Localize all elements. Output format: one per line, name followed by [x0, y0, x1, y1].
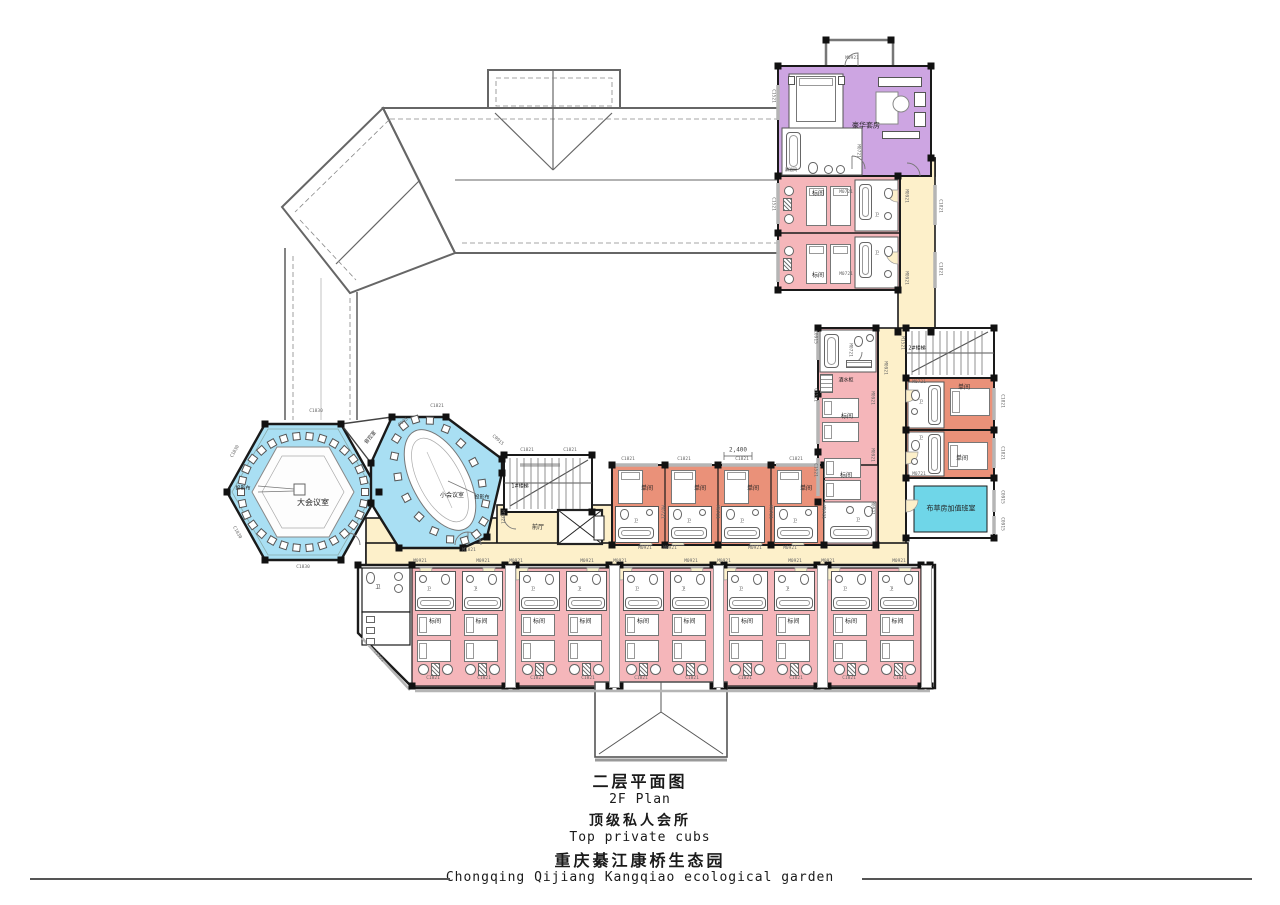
balcony-chair [834, 664, 845, 675]
sink [911, 408, 918, 415]
room-label: 卫 [740, 519, 744, 523]
door-window-code: M0721 [912, 381, 926, 386]
sink [466, 575, 474, 583]
toilet [726, 509, 735, 520]
counter [846, 360, 872, 368]
balcony-table [783, 258, 792, 271]
sink [570, 575, 578, 583]
room-label: 1#楼梯 [511, 485, 528, 490]
pair-wall [921, 565, 932, 688]
bed [464, 640, 498, 662]
wine-cabinet [820, 374, 833, 393]
bed [822, 422, 859, 442]
balcony-table [478, 663, 487, 676]
door-window-code: M0921 [788, 560, 802, 565]
room-label: 卫 [578, 587, 582, 591]
bathtub [776, 597, 813, 609]
balcony-chair [784, 186, 794, 196]
door-window-code: M0921 [783, 547, 797, 552]
door-window-code: C1821 [520, 449, 534, 454]
bed [568, 640, 602, 662]
room-label: 卫 [634, 519, 638, 523]
balcony-chair [442, 664, 453, 675]
room-label: 卫 [474, 587, 478, 591]
balcony-table [894, 663, 903, 676]
toilet [779, 509, 788, 520]
door-window-code: C1821 [677, 458, 691, 463]
room-label: 标间 [845, 619, 857, 625]
door-window-code: M0921 [869, 391, 874, 405]
sink [731, 575, 739, 583]
door-window-code: C1821 [842, 677, 856, 682]
sink [394, 572, 403, 581]
bed [824, 480, 861, 500]
urinal [366, 638, 375, 645]
entrance-porch-roof [595, 682, 727, 760]
bed [618, 470, 643, 504]
door-window-code: M1821 [462, 549, 476, 554]
door-window-code: M0921 [638, 547, 652, 552]
room-label: 小会议室 [440, 493, 464, 499]
room-label: 酒水柜 [838, 379, 853, 384]
sink [523, 575, 531, 583]
door-window-code: C1521 [770, 89, 775, 103]
balcony-table [431, 663, 440, 676]
door-window-code: M0721 [839, 191, 853, 196]
urinal [366, 627, 375, 634]
toilet [592, 574, 601, 585]
bed [777, 470, 802, 504]
balcony-table [535, 663, 544, 676]
balcony-chair [626, 664, 637, 675]
balcony-chair [569, 664, 580, 675]
room-label: 卫 [739, 587, 743, 591]
room-label: 标间 [533, 619, 545, 625]
door-window-code: C1830 [296, 566, 310, 571]
room-label: 卫 [427, 587, 431, 591]
balcony-chair [697, 664, 708, 675]
door-window-code: C1821 [789, 677, 803, 682]
door-window-code: C1821 [530, 677, 544, 682]
balcony-chair [522, 664, 533, 675]
suite-sink [824, 165, 833, 174]
toilet [545, 574, 554, 585]
room-label: 卫 [856, 518, 860, 522]
sink [835, 575, 843, 583]
bed [776, 640, 810, 662]
balcony-chair [801, 664, 812, 675]
bed [729, 640, 763, 662]
door-window-code: C1821 [893, 677, 907, 682]
room-label: 标间 [812, 191, 824, 197]
door-window-code: C1821 [477, 677, 491, 682]
balcony-chair [489, 664, 500, 675]
balcony-table [847, 663, 856, 676]
bathtub [830, 526, 872, 539]
door-window-code: M0921 [903, 189, 908, 203]
suite-armchair [914, 112, 926, 127]
sink [752, 509, 759, 516]
toilet [884, 246, 893, 257]
project-name-zh: 重庆綦江康桥生态园 [0, 847, 1280, 871]
room-label: 卫 [375, 586, 380, 591]
sink [627, 575, 635, 583]
balcony-table [783, 198, 792, 211]
sink [674, 575, 682, 583]
bed [880, 640, 914, 662]
balcony-chair [465, 664, 476, 675]
dimension-label: 2,400 [729, 447, 747, 454]
bathtub [618, 527, 654, 539]
bathtub [859, 184, 872, 220]
sink [911, 458, 918, 465]
door-window-code: M0921 [748, 547, 762, 552]
bathtub [671, 527, 707, 539]
door-window-code: C1821 [634, 677, 648, 682]
room-label: 卫 [531, 587, 535, 591]
door-window-code: C1830 [309, 410, 323, 415]
nightstand [788, 76, 795, 85]
balcony-chair [858, 664, 869, 675]
toilet [441, 574, 450, 585]
roof-plan [282, 70, 785, 420]
toilet [911, 440, 920, 451]
toilet [620, 509, 629, 520]
door-window-code: M0721 [659, 505, 664, 519]
room-label: 卫 [786, 587, 790, 591]
room-label: 标间 [429, 619, 441, 625]
balcony-chair [673, 664, 684, 675]
bathtub [672, 597, 709, 609]
door-window-code: M0921 [717, 560, 731, 565]
sink [778, 575, 786, 583]
room-label: 单间 [800, 486, 812, 492]
room-label: 标间 [787, 619, 799, 625]
sink [394, 584, 403, 593]
bathtub [464, 597, 501, 609]
bathtub [521, 597, 558, 609]
sink [884, 212, 892, 220]
bathtub [724, 527, 760, 539]
door-window-code: M0921 [413, 560, 427, 565]
toilet [649, 574, 658, 585]
door-window-code: M0921 [580, 560, 594, 565]
door-window-code: M0921 [892, 560, 906, 565]
bed [672, 640, 706, 662]
door-window-code: M0721 [847, 343, 852, 357]
room-label: 卫 [843, 587, 847, 591]
sink [699, 509, 706, 516]
door-window-code: C1821 [937, 262, 942, 276]
title-rule-left [30, 878, 450, 880]
sink [882, 575, 890, 583]
door-window-code: C1821 [621, 458, 635, 463]
toilet [800, 574, 809, 585]
bathtub [928, 385, 941, 425]
room-label: 标间 [891, 619, 903, 625]
door-window-code: C0915 [999, 517, 1004, 531]
bed [833, 640, 867, 662]
door-window-code: C1821 [563, 449, 577, 454]
door-window-code: M0721 [767, 505, 772, 519]
room-label: 单间 [694, 486, 706, 492]
bed [671, 470, 696, 504]
bed [625, 640, 659, 662]
suite-bathtub [786, 132, 801, 170]
suite-sofa [878, 77, 922, 87]
balcony-chair [754, 664, 765, 675]
door-window-code: C1821 [735, 458, 749, 463]
door-window-code: M0921 [509, 560, 523, 565]
subtitle-en: Top private cubs [0, 830, 1280, 845]
title-rule-right [862, 878, 1252, 880]
bathtub [824, 334, 839, 368]
plan-title-zh: 二层平面图 [0, 768, 1280, 792]
door-window-code: C1521 [770, 197, 775, 211]
door-window-code: M0921 [476, 560, 490, 565]
balcony-table [582, 663, 591, 676]
balcony-chair [546, 664, 557, 675]
suite-armchair [914, 92, 926, 107]
room-label: 标间 [840, 473, 852, 479]
toilet [366, 572, 375, 584]
sink [846, 506, 854, 514]
balcony-chair [784, 246, 794, 256]
door-window-code: M0921 [869, 501, 874, 515]
door-window-code: C1821 [999, 446, 1004, 460]
pair-wall [713, 565, 724, 688]
room-label: 卫 [793, 519, 797, 523]
door-window-code: C1521 [812, 463, 817, 477]
bed [830, 244, 851, 284]
room-label: 布草房加值班室 [927, 506, 976, 513]
door-window-code: C1821 [430, 405, 444, 410]
door-window-code: M0721 [855, 144, 860, 158]
room-label: 标间 [683, 619, 695, 625]
balcony-chair [881, 664, 892, 675]
sink [805, 509, 812, 516]
sink [866, 334, 874, 342]
room-label: 单间 [958, 385, 970, 391]
bathtub [880, 597, 917, 609]
room-label: 卫 [875, 213, 879, 217]
room-label: 标间 [812, 273, 824, 279]
bathtub [417, 597, 454, 609]
urinal [366, 616, 375, 623]
room-label: 投影布 [235, 487, 250, 492]
suite-bed [796, 76, 836, 122]
room-label: 卫 [635, 587, 639, 591]
door-window-code: M0721 [820, 505, 825, 519]
bathtub [928, 434, 941, 474]
bathtub [625, 597, 662, 609]
room-label: 标间 [637, 619, 649, 625]
door-window-code: C0915 [999, 490, 1004, 504]
room-label: 单间 [641, 486, 653, 492]
door-window-code: M0921 [663, 547, 677, 552]
door-window-code: M0921 [821, 560, 835, 565]
sink [646, 509, 653, 516]
door-window-code: M1521 [499, 510, 504, 524]
door-window-code: C1821 [426, 677, 440, 682]
door-window-code: M0721 [839, 273, 853, 278]
door-window-code: M0921 [882, 361, 887, 375]
bed [417, 640, 451, 662]
plan-title-en: 2F Plan [0, 792, 1280, 807]
room-label: 投影布 [474, 496, 489, 501]
room-label: 淋浴间 [785, 168, 797, 172]
room-label: 标间 [579, 619, 591, 625]
toilet [488, 574, 497, 585]
door-window-code: C1821 [581, 677, 595, 682]
balcony-chair [777, 664, 788, 675]
balcony-chair [730, 664, 741, 675]
room-label: 2#楼梯 [908, 347, 925, 352]
toilet [753, 574, 762, 585]
sink [884, 270, 892, 278]
balcony-chair [418, 664, 429, 675]
balcony-table [686, 663, 695, 676]
elevator [558, 510, 604, 544]
room-label: 卫 [682, 587, 686, 591]
room-label: 卫 [687, 519, 691, 523]
toilet [904, 574, 913, 585]
balcony-table [639, 663, 648, 676]
room-label: 单间 [956, 456, 968, 462]
door-window-code: M0721 [912, 473, 926, 478]
balcony-chair [784, 214, 794, 224]
toilet [696, 574, 705, 585]
door-window-code: C1821 [937, 199, 942, 213]
room-label: 卫 [919, 436, 923, 440]
balcony-table [743, 663, 752, 676]
door-window-code: C1821 [738, 677, 752, 682]
door-window-code: M0921 [845, 57, 859, 62]
room-label: 单间 [747, 486, 759, 492]
door-window-code: M0921 [903, 271, 908, 285]
door-window-code: M0721 [714, 505, 719, 519]
door-window-code: C1821 [999, 394, 1004, 408]
door-window-code: C0915 [812, 330, 817, 344]
door-window-code: M0921 [869, 448, 874, 462]
toilet [673, 509, 682, 520]
room-label: 标间 [741, 619, 753, 625]
room-label: 大会议室 [297, 499, 329, 507]
bathtub [777, 527, 813, 539]
toilet [857, 574, 866, 585]
subtitle-zh: 顶级私人会所 [0, 810, 1280, 830]
balcony-chair [905, 664, 916, 675]
bathtub [568, 597, 605, 609]
bathtub [729, 597, 766, 609]
pair-wall [505, 565, 516, 688]
suite-toilet [808, 162, 818, 174]
door-window-code: M0921 [613, 560, 627, 565]
door-window-code: C1521 [812, 388, 817, 402]
balcony-chair [784, 274, 794, 284]
floor-plan-canvas: 豪华套房淋浴间标间标间酒水柜标间标间卫单间单间卫卫卫卫布草房加值班室2#楼梯1#… [0, 0, 1280, 905]
room-label: 卫 [875, 251, 879, 255]
pair-wall [609, 565, 620, 688]
door-window-code: C1821 [685, 677, 699, 682]
balcony-table [790, 663, 799, 676]
room-label: 标间 [841, 414, 853, 420]
nightstand [838, 76, 845, 85]
bed [724, 470, 749, 504]
pair-wall [817, 565, 828, 688]
door-window-code: C1821 [789, 458, 803, 463]
toilet [884, 188, 893, 199]
room-label: 卫 [919, 400, 923, 404]
balcony-chair [650, 664, 661, 675]
door-window-code: M1521 [899, 336, 904, 350]
sink [419, 575, 427, 583]
bathtub [859, 242, 872, 278]
room-label: 卫 [890, 587, 894, 591]
room-label: 豪华套房 [852, 123, 880, 130]
room-label: 标间 [475, 619, 487, 625]
suite-sink [836, 165, 845, 174]
bathtub [833, 597, 870, 609]
room-label: 前厅 [532, 525, 544, 531]
balcony-chair [593, 664, 604, 675]
door-window-code: M0921 [684, 560, 698, 565]
bed [521, 640, 555, 662]
toilet [854, 336, 863, 347]
bed [950, 388, 990, 416]
suite-cabinet [882, 131, 920, 139]
